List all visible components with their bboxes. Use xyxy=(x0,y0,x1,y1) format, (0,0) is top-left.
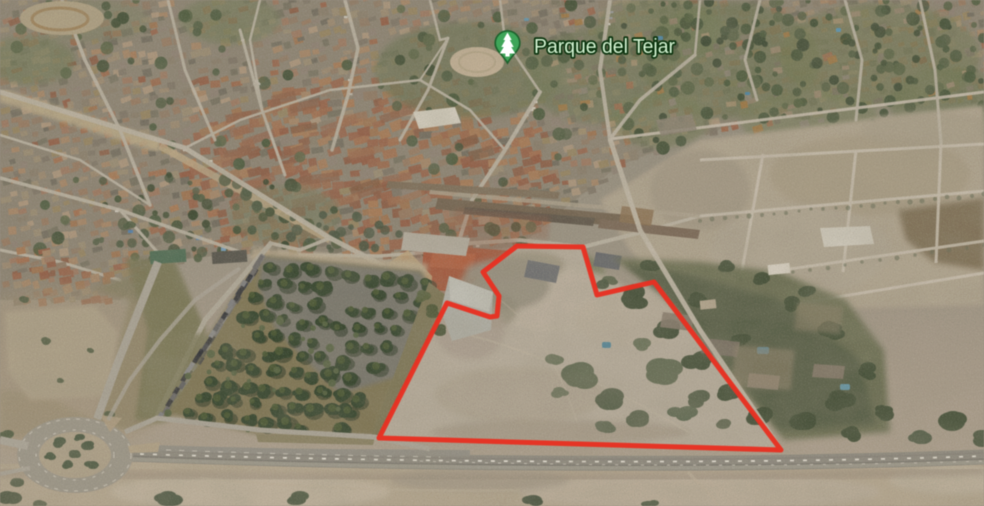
svg-text:Parque del Tejar: Parque del Tejar xyxy=(534,36,675,58)
